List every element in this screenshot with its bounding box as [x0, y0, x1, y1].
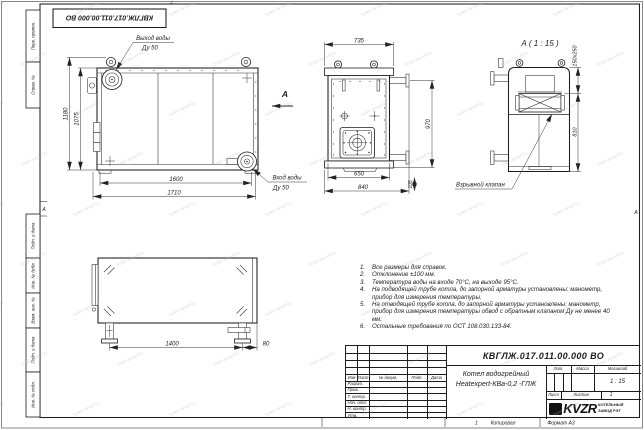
- note-text: Отклонение ±100 мм.: [372, 271, 616, 278]
- footer-copy-label: Копировал: [491, 421, 516, 427]
- note-item: 4. На подводящей трубе котла, до запорно…: [356, 286, 616, 301]
- bottom-view: 1400 80: [92, 258, 270, 351]
- note-number: 1.: [356, 264, 372, 271]
- side-label-vzam: Взам. инв. №: [31, 297, 36, 324]
- note-item: 1. Все размеры для справок.: [356, 264, 616, 271]
- burner-plate-icon: [340, 128, 375, 159]
- lifting-lug-icon: [241, 57, 250, 66]
- technical-notes: 1. Все размеры для справок. 2. Отклонени…: [356, 264, 616, 331]
- tb-sheet-label: Лист: [546, 391, 561, 399]
- dim-bottom-1400: 1400: [165, 342, 179, 348]
- zone-right: А: [633, 210, 638, 216]
- outlet-flange-icon: [102, 70, 122, 90]
- dim-bottom-80: 80: [263, 342, 270, 348]
- view-arrow-label: А: [281, 89, 288, 99]
- dim-front-1075: 1075: [75, 112, 81, 126]
- note-item: 5. На отводящей трубе котла, до запорной…: [356, 301, 616, 323]
- note-item: 2. Отклонение ±100 мм.: [356, 271, 616, 278]
- tb-doc-number: КВГЛЖ.017.011.00.000 ВО: [446, 346, 641, 365]
- company-name: КОТЕЛЬНЫЙ ЗАВОД РЭТ: [598, 402, 640, 416]
- dim-detail-810: 810: [573, 126, 579, 136]
- note-number: 6.: [356, 323, 372, 330]
- outlet-label: Выход воды: [136, 36, 170, 42]
- side-label-podp2: Подп. и дата: [31, 336, 36, 364]
- company-logo-text: KVZR: [562, 399, 598, 417]
- lifting-lug-icon: [106, 57, 115, 66]
- side-label-inv-podl: Инв. № подл.: [31, 381, 36, 408]
- lifting-lug-icon: [370, 61, 377, 68]
- tb-col-podp: Подп.: [407, 374, 427, 381]
- front-view: 1180 1075 1600 1710 Выход воды Ду 50 Вхо…: [64, 36, 308, 200]
- footer-format-label: Формат А3: [547, 421, 575, 427]
- top-stamp-text: КВГЛЖ.017.011.00.000 ВО: [65, 14, 153, 21]
- zone-left: А: [41, 207, 46, 213]
- note-text: На подводящей трубе котла, до запорной а…: [372, 286, 616, 301]
- drawing-sheet: Перв. примен. Справ. № Подп. и дата Инв.…: [0, 0, 644, 430]
- lifting-lug-icon: [334, 61, 341, 68]
- note-text: Все размеры для справок.: [372, 264, 616, 271]
- tb-col-dokum: № докум.: [369, 374, 407, 381]
- note-item: 3. Температура воды на входе 70°С, на вы…: [356, 279, 616, 286]
- dim-end-650: 650: [354, 172, 365, 178]
- zone-bottom: 1: [475, 421, 478, 427]
- note-number: 2.: [356, 271, 372, 278]
- tb-product-name: Котел водогрейный Heatexpert-КВа-0,2 -ГЛ…: [446, 365, 546, 395]
- dim-detail-150x250: 150x250: [573, 45, 579, 67]
- dim-front-1710: 1710: [167, 191, 181, 197]
- inlet-label: Вход воды: [272, 176, 302, 182]
- tb-row-utv: Утв.: [346, 412, 371, 418]
- tb-mass-label: Масса: [571, 365, 594, 373]
- note-number: 4.: [356, 286, 372, 301]
- end-view: 735 970 650 840 105: [325, 39, 435, 195]
- tb-sheets-label: Листов: [561, 391, 601, 399]
- tb-product-name-line2: Heatexpert-КВа-0,2 -ГЛЖ: [456, 380, 536, 391]
- note-text: Остальные требования по ОСТ 108.030.133-…: [372, 323, 616, 330]
- note-number: 3.: [356, 279, 372, 286]
- lifting-lug-icon: [516, 60, 523, 67]
- detail-a-view: А ( 1 : 15 ): [455, 39, 581, 189]
- note-item: 6. Остальные требования по ОСТ 108.030.1…: [356, 323, 616, 330]
- note-text: На отводящей трубе котла, до запорной ар…: [372, 301, 616, 323]
- tb-col-list: Лист: [357, 374, 369, 381]
- dim-front-1180: 1180: [64, 107, 70, 121]
- tb-row-nkontr: Н. контр.: [346, 406, 371, 412]
- dim-end-840: 840: [358, 185, 369, 191]
- explosion-valve-label: Взрывной клапан: [456, 182, 505, 189]
- side-label-podp1: Подп. и дата: [31, 222, 36, 250]
- company-logo-icon: [549, 403, 562, 415]
- dim-end-970: 970: [426, 118, 432, 129]
- lifting-lug-icon: [558, 60, 565, 67]
- tb-scale-value: 1 : 15: [594, 373, 641, 392]
- company-name-line2: ЗАВОД РЭТ: [598, 408, 640, 414]
- inlet-dn-label: Ду 50: [272, 186, 289, 192]
- tb-col-izm: Изм: [346, 374, 357, 381]
- tb-scale-label: Масштаб: [594, 365, 641, 373]
- dim-end-105: 105: [408, 180, 414, 189]
- tb-product-name-line1: Котел водогрейный: [463, 370, 530, 381]
- tb-col-data: Дата: [427, 374, 446, 381]
- dim-front-1600: 1600: [169, 177, 183, 183]
- side-label-perv: Перв. примен.: [31, 22, 36, 51]
- detail-view-title: А ( 1 : 15 ): [520, 39, 559, 48]
- tb-row-prov: Пров.: [346, 387, 371, 393]
- dim-end-735: 735: [354, 39, 365, 45]
- tb-sheets-value: 1: [601, 391, 621, 399]
- outlet-dn-label: Ду 50: [141, 46, 158, 52]
- note-number: 5.: [356, 301, 372, 323]
- note-text: Температура воды на входе 70°С, на выход…: [372, 279, 616, 286]
- title-block: Изм Лист № докум. Подп. Дата Разраб. Про…: [345, 345, 640, 418]
- side-label-inv-dubl: Инв. № дубл.: [31, 262, 36, 288]
- side-label-sprav: Справ. №: [31, 75, 36, 95]
- tb-lit-label: Лит.: [546, 365, 571, 373]
